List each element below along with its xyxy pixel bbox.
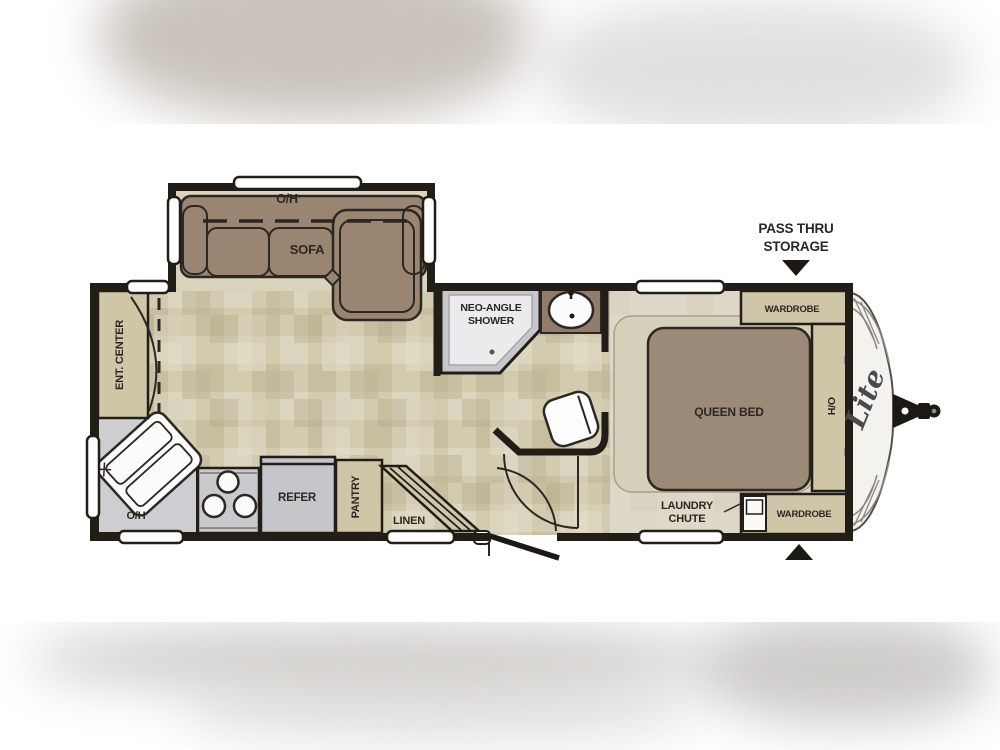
bed-overhead-label: O/H [825,397,837,415]
window [639,531,723,543]
slide-overhead-label: O/H [276,192,298,206]
floorplan-svg: O/H SOFA ENT. CENTER O/H REFER PANTRY LI… [0,0,1000,750]
laundry-chute-label-line2: CHUTE [669,513,706,525]
window [234,177,361,189]
window [119,531,183,543]
hitch-tongue [893,394,941,428]
bathroom-vanity [541,286,601,333]
ent-center-label: ENT. CENTER [114,320,126,390]
drain-icon [490,350,495,355]
window [127,281,169,293]
drain-icon [570,314,575,319]
pass-thru-label-line2: STORAGE [763,239,828,254]
pantry-label: PANTRY [350,475,362,519]
front-storage-up-arrow-icon [785,544,813,560]
wardrobe-bottom-label: WARDROBE [777,509,832,520]
wardrobe-top-label: WARDROBE [765,304,820,315]
shower-label-line1: NEO-ANGLE [460,302,521,314]
kitchen-overhead-label: O/H [127,510,146,522]
stove [198,468,259,533]
linen-label: LINEN [393,515,425,527]
sofa-label: SOFA [290,242,325,257]
window [387,531,454,543]
burner-icon [203,495,225,517]
pass-thru-down-arrow-icon [782,260,810,276]
queen-bed-label: QUEEN BED [694,405,764,419]
pass-thru-label-line1: PASS THRU [758,221,833,236]
window [168,197,180,264]
refer-label: REFER [278,492,317,504]
burner-icon [218,472,239,493]
screenshot-canvas: O/H SOFA ENT. CENTER O/H REFER PANTRY LI… [0,0,1000,750]
window [636,281,724,293]
shower-label-line2: SHOWER [468,315,515,327]
window [87,436,99,518]
laundry-chute-label-line1: LAUNDRY [661,500,714,512]
burner-icon [234,495,256,517]
entry-door-leaf [490,536,559,558]
sofa-chaise [333,210,421,320]
window [423,197,435,264]
